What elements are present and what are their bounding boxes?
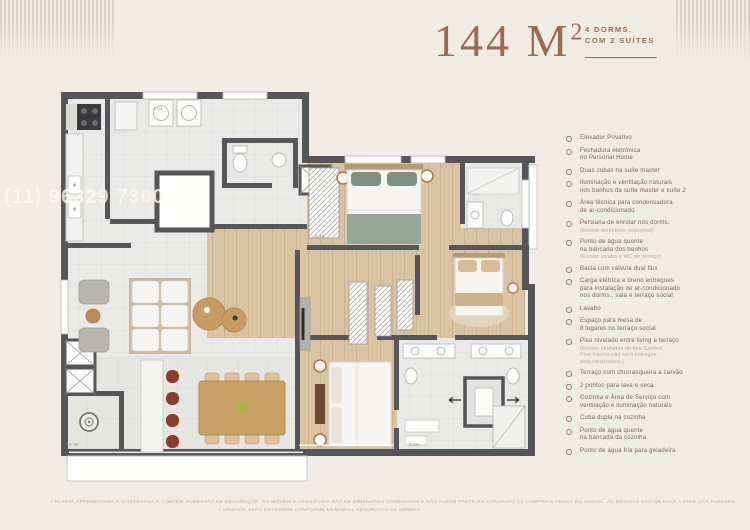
- stripe-pattern-top-left: [0, 0, 114, 62]
- bullet-circle-icon: [566, 307, 572, 313]
- service-area: [115, 100, 201, 130]
- bullet-circle-icon: [566, 449, 572, 455]
- bullet-circle-icon: [566, 240, 572, 246]
- feature-item: Ponto de água quente na bancada da cozin…: [566, 428, 748, 443]
- feature-text: Espaço para mesa de 8 lugares no terraço…: [580, 318, 656, 333]
- feature-text: Ponto de água quente na bancada dos banh…: [580, 239, 662, 261]
- feature-label: Lavabo: [580, 306, 601, 314]
- bullet-circle-icon: [566, 169, 572, 175]
- feature-label: Duas cubas na suíte master: [580, 168, 660, 176]
- feature-label: Ponto de água fria para geladeira: [580, 448, 676, 456]
- bullet-circle-icon: [566, 339, 572, 345]
- feature-text: Bacia com válvula dual flux: [580, 266, 658, 274]
- bullet-circle-icon: [566, 396, 572, 402]
- feature-text: Duas cubas na suíte master: [580, 168, 660, 176]
- terrace-ledge: [67, 456, 307, 481]
- feature-text: Cuba dupla na cozinha: [580, 415, 646, 423]
- feature-item: Cozinha e Área de Serviço com ventilação…: [566, 395, 748, 410]
- floor-plan: 4.043.165.103.400.36: [57, 88, 541, 493]
- bullet-circle-icon: [566, 201, 572, 207]
- feature-text: Ponto de água quente na bancada da cozin…: [580, 428, 646, 443]
- feature-label: Iluminação e ventilação naturais nos ban…: [580, 180, 686, 195]
- feature-item: Ponto de água fria para geladeira: [566, 448, 748, 456]
- subtitle-underline: [585, 57, 657, 58]
- feature-item: Elevador Privativo: [566, 135, 748, 143]
- feature-label: Bacia com válvula dual flux: [580, 266, 658, 274]
- dimension-label: 0.36: [69, 442, 79, 447]
- dimension-label: 3.40: [409, 442, 419, 447]
- feature-item: Bacia com válvula dual flux: [566, 266, 748, 274]
- feature-item: 2 pontos para lava e seca: [566, 383, 748, 391]
- feature-text: Ponto de água fria para geladeira: [580, 448, 676, 456]
- feature-item: Carga elétrica e dreno entregues para in…: [566, 278, 748, 301]
- private-elevator: [157, 173, 212, 230]
- feature-label: Carga elétrica e dreno entregues para in…: [580, 278, 680, 301]
- feature-text: Elevador Privativo: [580, 135, 632, 143]
- feature-label: Cozinha e Área de Serviço com ventilação…: [580, 395, 672, 410]
- feature-text: Lavabo: [580, 306, 601, 314]
- disclaimer-line2: A UNIDADE SERÁ ENTREGUE CONFORME MEMORIA…: [50, 507, 590, 515]
- feature-text: Carga elétrica e dreno entregues para in…: [580, 278, 680, 301]
- feature-label: Fechadura eletrônica no Personal Home: [580, 148, 640, 163]
- feature-text: Persiana de enrolar nos dorms. (Exceto d…: [580, 220, 670, 234]
- dimension-label: 4.04: [153, 106, 163, 111]
- dimension-label: 5.10: [455, 252, 465, 257]
- bullet-circle-icon: [566, 384, 572, 390]
- page: 144 M2 4 DORMS. COM 2 SUÍTES (11) 96329 …: [0, 0, 750, 530]
- feature-label: Ponto de água quente na bancada da cozin…: [580, 428, 646, 443]
- feature-item: Iluminação e ventilação naturais nos ban…: [566, 180, 748, 195]
- feature-label: Ponto de água quente na bancada dos banh…: [580, 239, 662, 254]
- feature-label: Piso nivelado entre living e terraço: [580, 338, 679, 346]
- feature-item: Área técnica para condensadora de ar-con…: [566, 200, 748, 215]
- feature-label: Elevador Privativo: [580, 135, 632, 143]
- feature-text: Fechadura eletrônica no Personal Home: [580, 148, 640, 163]
- suite-2: [309, 164, 433, 244]
- feature-note: (Exceto lavabo e WC de serviço): [580, 254, 662, 261]
- feature-text: Piso nivelado entre living e terraço (Ex…: [580, 338, 679, 365]
- bullet-circle-icon: [566, 416, 572, 422]
- feature-label: 2 pontos para lava e seca: [580, 383, 654, 391]
- bullet-circle-icon: [566, 279, 572, 285]
- features-list: Elevador Privativo Fechadura eletrônica …: [566, 135, 748, 455]
- superscript-2: 2: [570, 20, 582, 46]
- feature-item: Persiana de enrolar nos dorms. (Exceto d…: [566, 220, 748, 234]
- phone-watermark: (11) 96329 7300: [4, 186, 165, 209]
- feature-text: Iluminação e ventilação naturais nos ban…: [580, 180, 686, 195]
- side-ledge: [529, 165, 537, 249]
- page-title: 144 M2: [434, 18, 582, 64]
- feature-item: Duas cubas na suíte master: [566, 168, 748, 176]
- bullet-circle-icon: [566, 319, 572, 325]
- terrace-glass: [69, 452, 303, 454]
- feature-label: Terraço com churrasqueira a carvão: [580, 370, 683, 378]
- bullet-circle-icon: [566, 136, 572, 142]
- stripe-pattern-top-right: [676, 0, 750, 62]
- subtitle-line2: COM 2 SUÍTES: [585, 35, 655, 46]
- feature-item: Fechadura eletrônica no Personal Home: [566, 148, 748, 163]
- floor-plan-drawing: [57, 88, 541, 493]
- bullet-circle-icon: [566, 267, 572, 273]
- feature-text: Cozinha e Área de Serviço com ventilação…: [580, 395, 672, 410]
- feature-note: (Exceto unidades do tipo Garden. Piso in…: [580, 346, 679, 366]
- feature-item: Ponto de água quente na bancada dos banh…: [566, 239, 748, 261]
- feature-note: (Exceto dormitório reversível): [580, 228, 670, 235]
- feature-item: Piso nivelado entre living e terraço (Ex…: [566, 338, 748, 365]
- feature-item: Espaço para mesa de 8 lugares no terraço…: [566, 318, 748, 333]
- disclaimer: A PLANTA APRESENTADA É ILUSTRATIVA E CON…: [50, 499, 590, 514]
- bullet-circle-icon: [566, 371, 572, 377]
- feature-label: Área técnica para condensadora de ar-con…: [580, 200, 673, 215]
- bullet-circle-icon: [566, 221, 572, 227]
- feature-text: 2 pontos para lava e seca: [580, 383, 654, 391]
- tv-unit: [300, 298, 310, 350]
- bullet-circle-icon: [566, 429, 572, 435]
- subtitle-line1: 4 DORMS.: [585, 24, 655, 35]
- disclaimer-line1: A PLANTA APRESENTADA É ILUSTRATIVA E CON…: [50, 499, 590, 507]
- bullet-circle-icon: [566, 181, 572, 187]
- dimension-label: 3.16: [315, 234, 325, 239]
- feature-label: Cuba dupla na cozinha: [580, 415, 646, 423]
- feature-text: Área técnica para condensadora de ar-con…: [580, 200, 673, 215]
- feature-label: Espaço para mesa de 8 lugares no terraço…: [580, 318, 656, 333]
- feature-item: Lavabo: [566, 306, 748, 314]
- feature-text: Terraço com churrasqueira a carvão: [580, 370, 683, 378]
- feature-item: Terraço com churrasqueira a carvão: [566, 370, 748, 378]
- feature-label: Persiana de enrolar nos dorms.: [580, 220, 670, 228]
- page-subtitle: 4 DORMS. COM 2 SUÍTES: [585, 24, 655, 47]
- charcoal-grill: [80, 413, 98, 431]
- feature-item: Cuba dupla na cozinha: [566, 415, 748, 423]
- bullet-circle-icon: [566, 149, 572, 155]
